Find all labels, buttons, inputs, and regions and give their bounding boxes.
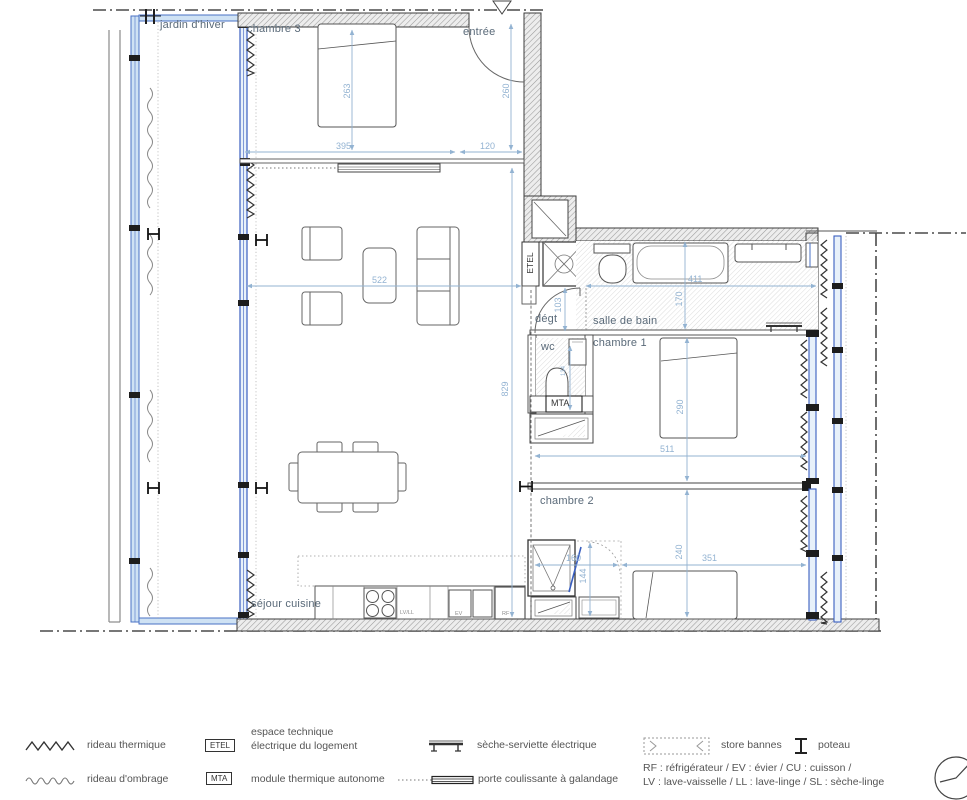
room-label-entree: entrée [463,26,495,38]
rideau-ombrage-curtain [148,88,153,616]
room-label-wc: wc [541,341,555,353]
bedroom-partition [520,481,811,492]
chambre3-bed [318,24,396,127]
sejour-west-glazing [238,18,256,622]
wc-sink [569,339,586,365]
legend-seche-serviette: sèche-serviette électrique [477,739,597,751]
porte-coulissante-symbol [398,773,476,787]
poteau-tick-marks [140,9,161,24]
dim-144: 144 [578,559,588,593]
chambre1-bed [660,338,737,438]
dim-240: 240 [674,535,684,569]
store-bannes-symbol [643,736,711,756]
chambre2-lower-units [531,597,619,619]
floor-plan-page: jardin d'hiver chambre 3 entrée dégt sal… [0,0,967,800]
legend-rideau-thermique: rideau thermique [87,739,166,751]
room-label-chambre-3: chambre 3 [247,23,301,35]
legend-porte-coulissante: porte coulissante à galandage [478,773,618,785]
entry-arrow-icon [493,1,511,14]
mta-tag: MTA [551,398,569,408]
room-label-jardin-dhiver: jardin d'hiver [160,19,225,31]
fridge [495,587,525,619]
left-neighbour-wall [109,30,120,622]
legend-mta: module thermique autonome [251,773,385,785]
wc-lower-unit [530,414,593,443]
room-label-sejour-cuisine: séjour cuisine [251,598,321,610]
dim-170: 170 [674,282,684,316]
dim-351: 351 [702,553,717,563]
room-label-chambre-1: chambre 1 [593,337,647,349]
rideau-thermique-west [247,30,254,618]
legend-store-bannes: store bannes [721,739,782,751]
dim-411: 411 [688,274,702,284]
legend-etel-line2: électrique du logement [251,740,357,752]
dim-103: 103 [553,288,563,322]
north-indicator-icon [928,752,967,800]
chambre2-bed [633,571,737,619]
jardin-dhiver-glazing [129,9,239,624]
poteau-symbols [148,228,267,494]
poteau-symbol [792,737,810,755]
dim-260: 260 [501,74,511,108]
legend-abbreviations-line2: LV : lave-vaisselle / LL : lave-linge / … [643,776,884,788]
legend-poteau: poteau [818,739,850,751]
sliding-door-partition [240,159,524,172]
dining-table [289,442,406,512]
rf-tag: RF [502,611,509,617]
etel-legend-box: ETEL [205,739,235,752]
bathtub [633,243,728,283]
dim-134: 134 [561,354,567,388]
rideau-ombrage-symbol [24,772,78,788]
ev-tag: EV [455,611,462,617]
vanity [735,244,801,262]
dim-395: 395 [336,141,351,151]
mta-legend-box: MTA [206,772,232,785]
wc-room [528,335,593,443]
legend-rideau-ombrage: rideau d'ombrage [87,773,168,785]
cooktop [364,588,396,618]
room-label-salle-de-bain: salle de bain [593,315,657,327]
room-label-chambre-2: chambre 2 [540,495,594,507]
dim-829: 829 [500,372,510,406]
dim-263: 263 [342,74,352,108]
lvll-tag: LV/LL [400,610,414,616]
etel-tag: ETEL [525,243,535,283]
seche-serviette-symbol [427,737,465,755]
dim-120: 120 [480,141,495,151]
legend-etel-line1: espace technique [251,726,333,738]
floor-plan-drawing [0,0,967,800]
legend-abbreviations-line1: RF : réfrigérateur / EV : évier / CU : c… [643,762,851,774]
rideau-thermique-symbol [24,737,78,755]
dim-522: 522 [372,275,387,285]
dim-290: 290 [675,390,685,424]
dim-511: 511 [660,444,674,454]
